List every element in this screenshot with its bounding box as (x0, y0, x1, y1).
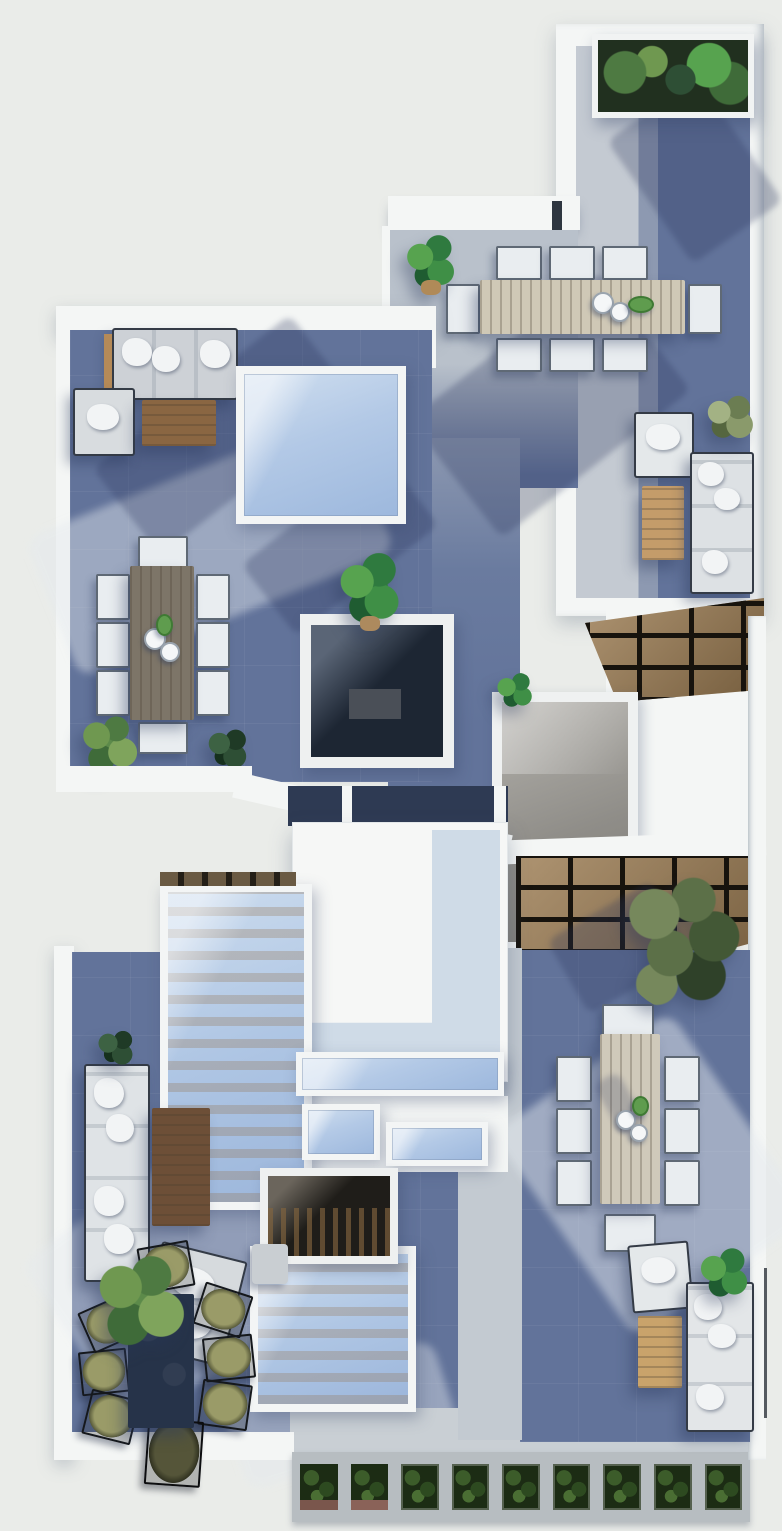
bowl (610, 302, 630, 322)
dining-chair (688, 284, 722, 334)
wire-chair (192, 1281, 253, 1338)
potted-plant (94, 1028, 138, 1068)
dining-chair (196, 670, 230, 716)
wire-chair (202, 1334, 256, 1383)
dining-chair (496, 338, 542, 372)
roof-divider (494, 786, 506, 826)
dining-chair (96, 670, 130, 716)
planter-box (300, 1464, 338, 1510)
dining-chair (446, 284, 480, 334)
armchair-lower-right (627, 1240, 694, 1313)
armchair-l (73, 388, 135, 456)
door-slit (552, 201, 562, 232)
bowl (160, 642, 180, 662)
potted-plant (404, 232, 458, 294)
dining-chair (602, 338, 648, 372)
grass-plant (92, 1252, 188, 1352)
planter-box (603, 1464, 641, 1510)
roof-inner-face (300, 830, 500, 1074)
roof-divider (342, 786, 352, 826)
planter-box (401, 1464, 439, 1510)
lounge-sofa-lower-right (686, 1282, 754, 1432)
dining-chair (664, 1160, 700, 1206)
patio-plant (494, 672, 536, 710)
wire-chair (197, 1379, 253, 1432)
skylight-small (386, 1122, 488, 1166)
dining-chair (196, 574, 230, 620)
planter-box (592, 34, 754, 118)
leaf-dish (156, 614, 173, 636)
void-furniture-hint (349, 689, 401, 719)
dining-chair (138, 536, 188, 568)
plant-lower-right (697, 1246, 752, 1302)
rooftop-floor-plan-render (0, 0, 782, 1531)
parapet-wall-lower-left-west (54, 946, 74, 1460)
white-roof-volume (292, 822, 508, 1082)
corner-shrub (700, 394, 760, 442)
leaf-dish (628, 296, 654, 313)
planter-box (502, 1464, 540, 1510)
banana-plant (338, 548, 402, 632)
tree (618, 872, 748, 1012)
dining-chair (664, 1108, 700, 1154)
armchair (634, 412, 694, 478)
dining-chair (556, 1108, 592, 1154)
skylight-beam-cap (160, 872, 296, 886)
dining-chair (602, 246, 648, 280)
railing-post (764, 1268, 767, 1418)
roof-edge-dark (288, 786, 508, 826)
sofa-wood-arm (104, 334, 112, 392)
coffee-table (642, 486, 684, 560)
dining-chair (196, 622, 230, 668)
dining-table (480, 280, 685, 334)
dining-chair (602, 1004, 654, 1038)
pouf (252, 1244, 288, 1284)
wire-chair (144, 1418, 204, 1488)
wall-upper-left-south (56, 766, 252, 792)
skylight-small (302, 1104, 380, 1160)
plant-pot (360, 616, 380, 631)
dining-set-lower-right (556, 1004, 696, 1250)
planter-box (351, 1464, 389, 1510)
planter-box (654, 1464, 692, 1510)
dining-chair (556, 1160, 592, 1206)
coffee-table-l (142, 400, 216, 446)
skylight-strip (296, 1052, 504, 1096)
dining-set-upper (446, 246, 718, 386)
coffee-table-lower-right (638, 1316, 682, 1388)
planter-box (452, 1464, 490, 1510)
dining-chair (556, 1056, 592, 1102)
dining-chair (96, 574, 130, 620)
planter-row (292, 1452, 750, 1522)
coffee-table-dark (152, 1108, 210, 1226)
dining-chair (96, 622, 130, 668)
courtyard-void (300, 614, 454, 768)
dining-table-light (600, 1034, 660, 1204)
plant-pot (421, 280, 441, 295)
dining-chair (549, 246, 595, 280)
wire-chair (78, 1348, 130, 1397)
dining-chair (664, 1056, 700, 1102)
planter-box (553, 1464, 591, 1510)
dining-chair (496, 246, 542, 280)
bowl (630, 1124, 648, 1142)
lounge-sofa (690, 452, 754, 594)
leaf-dish (632, 1096, 649, 1116)
dining-chair (549, 338, 595, 372)
dining-table-gray (130, 566, 194, 720)
planter-box (705, 1464, 743, 1510)
dining-chair (138, 722, 188, 754)
skylight-upper (236, 366, 406, 524)
